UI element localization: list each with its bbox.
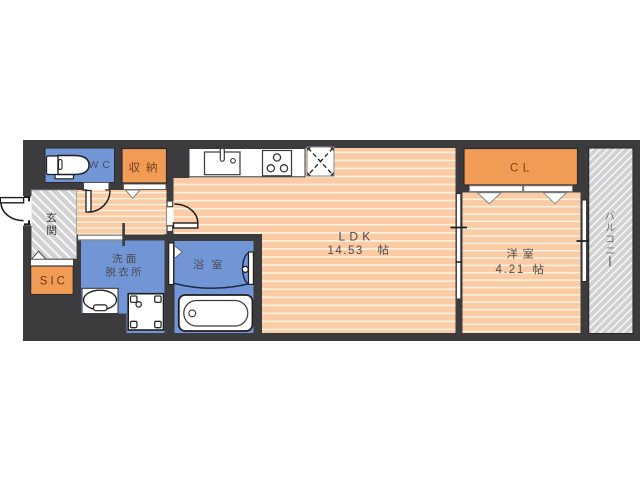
svg-text:14.53: 14.53	[328, 245, 364, 257]
svg-text:LDK: LDK	[339, 230, 375, 244]
svg-text:CL: CL	[510, 163, 534, 175]
svg-text:WC: WC	[89, 159, 115, 171]
svg-text:4.21: 4.21	[496, 264, 526, 276]
svg-text:SIC: SIC	[40, 275, 68, 287]
